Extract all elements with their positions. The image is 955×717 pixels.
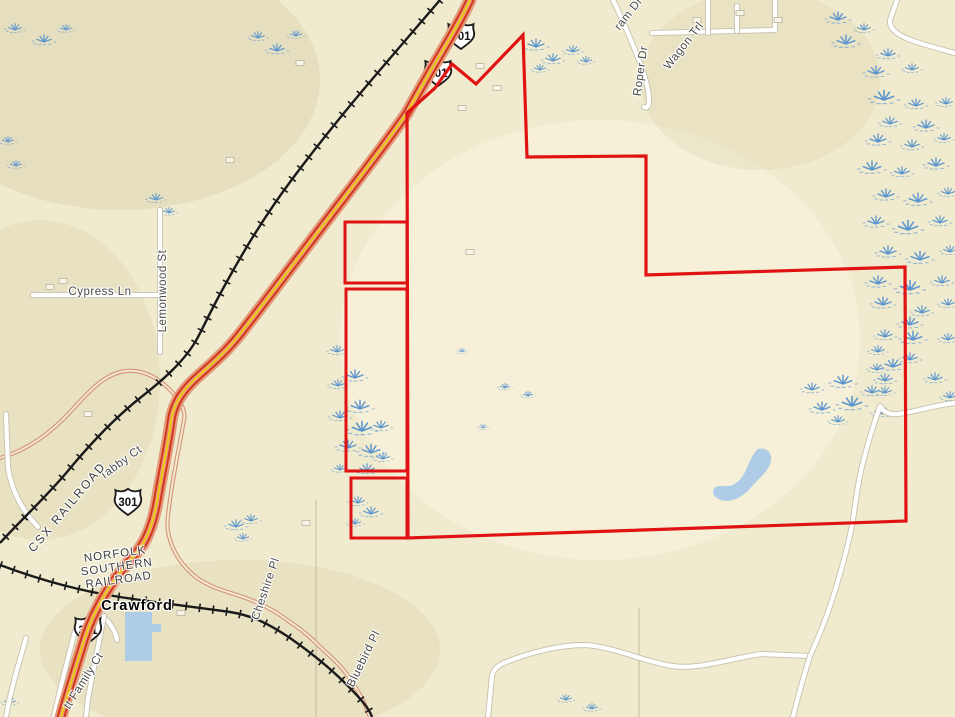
svg-text:301: 301 [118,497,138,509]
building-footprint [302,521,310,526]
building-footprint [493,86,501,91]
building-footprint [226,158,234,163]
map-canvas[interactable]: 301301301301 ram DrWagon TrlRoper DrLemo… [0,0,955,717]
building-footprint [466,250,474,255]
map-svg-layer: 301301301301 [0,0,955,717]
building-footprint [296,61,304,66]
building-footprint [46,285,54,290]
building-footprint [476,64,484,69]
building-footprint [177,611,185,616]
building-footprint [693,18,701,23]
building-footprint [458,106,466,111]
building-footprint [774,18,782,23]
building-footprint [736,11,744,16]
building-footprint [84,412,92,417]
building-footprint [59,279,67,284]
